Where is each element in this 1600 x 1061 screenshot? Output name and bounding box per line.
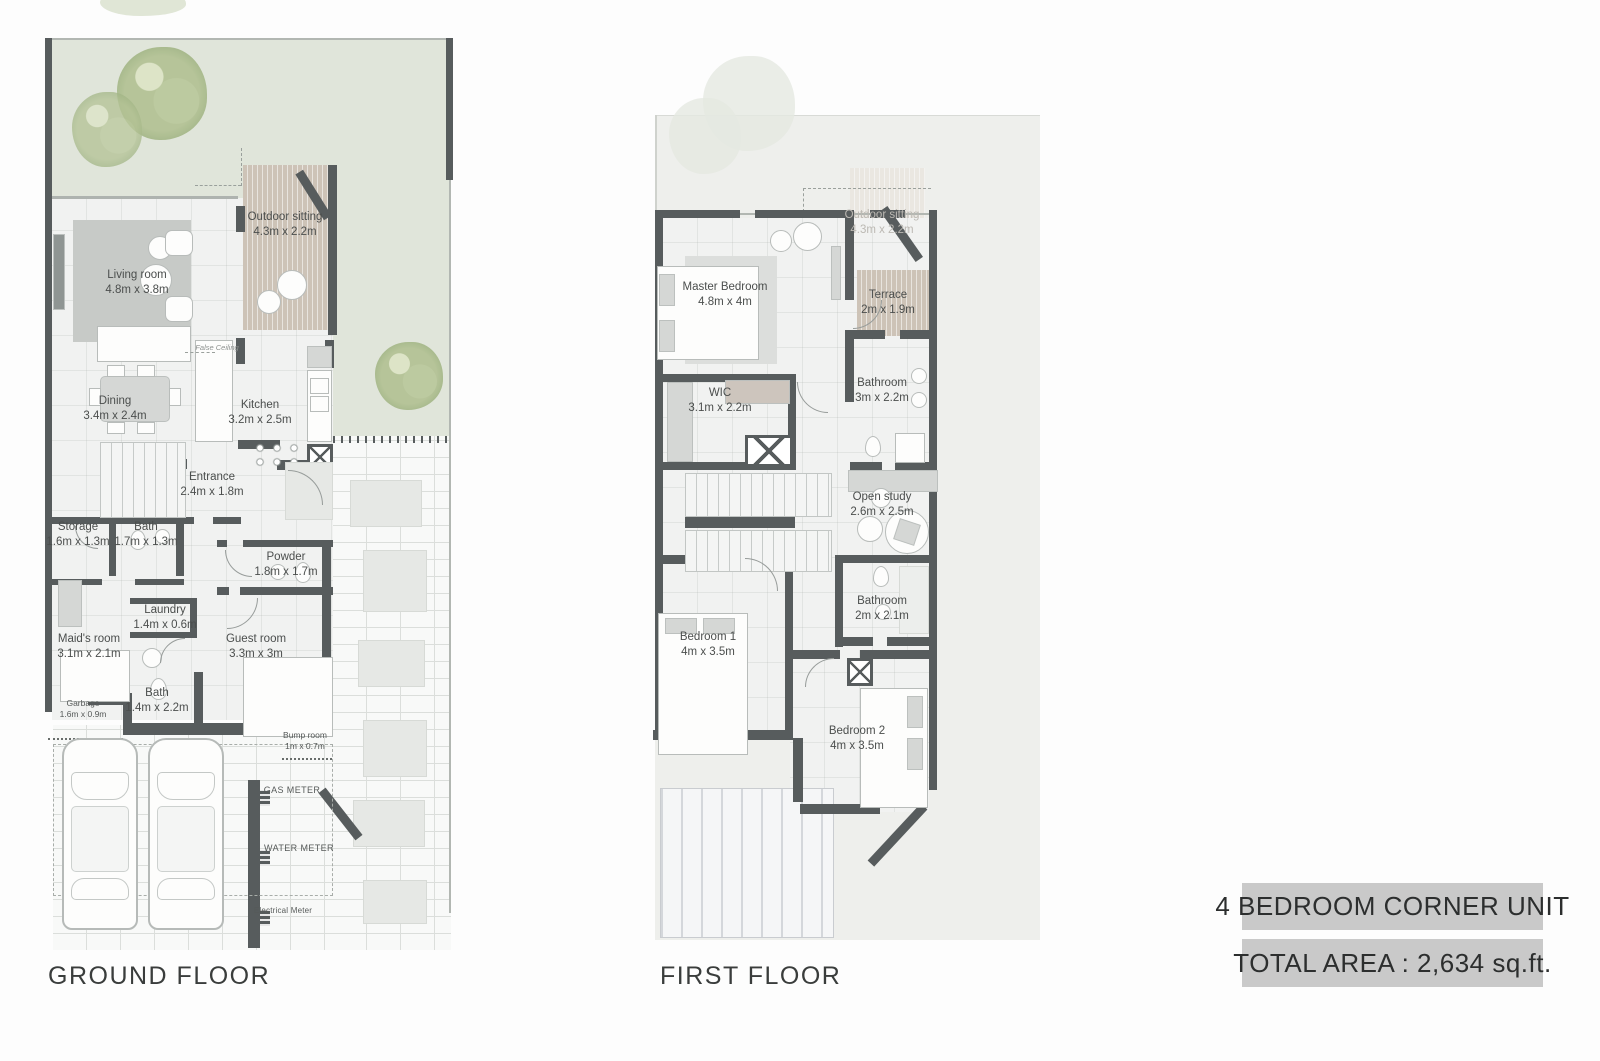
kitchen-sink: [310, 396, 329, 412]
room-label-bath-2: Bath 1.4m x 2.2m: [125, 686, 188, 715]
stair-run-upper: [685, 473, 832, 517]
pillow: [907, 738, 923, 770]
shower: [895, 433, 925, 463]
sink: [911, 368, 927, 384]
car-rear-window: [71, 878, 129, 900]
wall-house-bottom: [127, 723, 202, 735]
room-label-dining: Dining 3.4m x 2.4m: [83, 394, 146, 423]
stair-landing-wall: [685, 517, 795, 528]
floorplan-page: { "title_block": { "unit_type": "4 BEDRO…: [0, 0, 1600, 1061]
wall-bedroom1-right: [785, 555, 793, 738]
false-ceiling-note: False Ceiling: [195, 343, 238, 352]
dining-chair: [169, 388, 181, 406]
false-ceiling-leader: [185, 352, 215, 353]
electrical-meter-label: Electrical Meter: [254, 906, 312, 915]
wall-powder-bottom: [240, 587, 333, 595]
armchair: [165, 296, 193, 322]
water-meter-label: WATER METER: [264, 843, 334, 853]
wall-outer-right: [929, 210, 937, 790]
dashed-line: [195, 185, 241, 186]
unit-type-banner: 4 BEDROOM CORNER UNIT: [1242, 883, 1543, 930]
paving-edge-hatch: [333, 436, 451, 443]
car-roof: [71, 806, 129, 872]
ground-floor-plan: Outdoor sitting 4.3m x 2.2m Living room …: [45, 38, 455, 938]
room-label-kitchen: Kitchen 3.2m x 2.5m: [228, 398, 291, 427]
wall-bathroom2-bottom: [843, 637, 873, 646]
room-label-open-study: Open study 2.6m x 2.5m: [850, 490, 913, 519]
first-floor-title: FIRST FLOOR: [660, 962, 841, 991]
tree: [375, 342, 443, 410]
room-label-laundry: Laundry 1.4m x 0.6m: [133, 603, 196, 632]
first-floor-plan: Outdoor sitting 4.3m x 2.2m Master Bedro…: [645, 38, 1045, 940]
pillow: [907, 696, 923, 728]
room-label-outdoor-sitting: Outdoor sitting 4.3m x 2.2m: [248, 210, 323, 239]
room-label-bathroom-lower: Bathroom 2m x 2.1m: [855, 594, 909, 623]
car-windshield: [157, 772, 215, 800]
tree-canopy-cropped: [100, 0, 186, 16]
wall-outer-left: [45, 38, 52, 712]
room-label-powder: Powder 1.8m x 1.7m: [254, 550, 317, 579]
dashed-roof-line: [803, 188, 931, 189]
wall-powder-top: [243, 540, 333, 547]
wall-powder-jamb: [217, 587, 229, 595]
room-label-bedroom-1: Bedroom 1 4m x 3.5m: [680, 630, 736, 659]
room-label-bath: Bath 1.7m x 1.3m: [114, 520, 177, 549]
lounge-chair: [793, 222, 822, 251]
ghost-tree: [669, 98, 741, 174]
room-label-bathroom-top: Bathroom 3m x 2.2m: [855, 376, 909, 405]
patio-chair: [257, 290, 281, 314]
side-table: [770, 230, 792, 252]
wall-outer-right: [446, 38, 453, 180]
wall-terrace-bottom: [850, 330, 885, 339]
kitchen-sink: [310, 378, 329, 394]
wall-top: [755, 210, 850, 218]
room-label-terrace: Terrace 2m x 1.9m: [861, 288, 915, 317]
outdoor-sitting-deck: [243, 165, 330, 330]
wall-laundry-bottom: [130, 632, 196, 638]
shaft-box: [745, 435, 793, 467]
dining-chair: [137, 422, 155, 434]
gas-meter-label: GAS METER: [264, 785, 321, 795]
car-rear-window: [157, 878, 215, 900]
study-desk: [848, 470, 938, 492]
paving-patch: [350, 480, 422, 527]
wall-terrace-left-lower: [845, 330, 854, 402]
shaft-box: [847, 658, 873, 686]
room-label-master-bedroom: Master Bedroom 4.8m x 4m: [682, 280, 767, 309]
kitchen-counter: [195, 340, 233, 442]
dining-chair: [107, 422, 125, 434]
boundary-fence: [45, 38, 453, 40]
wall-bathroom2-left: [835, 555, 843, 647]
tree: [72, 92, 142, 167]
wall-bathroom2-top: [835, 555, 929, 563]
sofa: [97, 326, 191, 362]
guest-bed: [243, 657, 333, 737]
paving-patch: [358, 640, 425, 687]
wall-top: [655, 210, 740, 218]
wall-deck-jamb: [236, 206, 245, 232]
sink: [911, 392, 927, 408]
room-label-maids-room: Maid's room 3.1m x 2.1m: [57, 632, 120, 661]
car: [148, 738, 224, 930]
pillow: [659, 274, 675, 306]
staircase: [100, 442, 186, 518]
sink: [142, 648, 162, 668]
toilet: [865, 436, 881, 457]
wall-bath-bottom: [135, 579, 184, 585]
fridge: [307, 346, 332, 368]
dining-chair: [107, 365, 125, 377]
wall-bathroom2-bottom: [887, 637, 935, 646]
garden-low-wall: [52, 196, 238, 199]
paving-patch: [363, 550, 427, 612]
room-label-bump-room: Bump room 1m x 0.7m: [283, 730, 327, 752]
room-label-bedroom-2: Bedroom 2 4m x 3.5m: [829, 724, 885, 753]
wall-powder-jamb: [217, 540, 227, 547]
paving-patch: [353, 800, 425, 847]
room-label-wic: WIC 3.1m x 2.2m: [688, 386, 751, 415]
patio-table: [277, 270, 307, 300]
room-label-entrance: Entrance 2.4m x 1.8m: [180, 470, 243, 499]
wall-deck-right: [328, 165, 337, 335]
wall-bedroom2-left: [793, 738, 803, 802]
car-windshield: [71, 772, 129, 800]
wall-hall-jamb: [213, 517, 241, 524]
dashed-roof-line: [803, 188, 804, 212]
car-roof: [157, 806, 215, 872]
paving-patch: [363, 880, 427, 924]
chair: [857, 516, 883, 542]
tv-unit: [53, 234, 65, 310]
wall-terrace-bottom: [900, 330, 937, 339]
pillow: [659, 320, 675, 352]
car: [62, 738, 138, 930]
toilet: [873, 566, 889, 587]
room-label-garbage: Garbage 1.6m x 0.9m: [60, 698, 107, 720]
room-label-living-room: Living room 4.8m x 3.8m: [105, 268, 168, 297]
dashed-line: [241, 148, 242, 186]
storage-shelf: [58, 580, 82, 627]
boundary-line: [655, 115, 657, 210]
dining-chair: [137, 365, 155, 377]
room-label-ghost-outdoor-sitting: Outdoor sitting 4.3m x 2.2m: [845, 208, 920, 237]
paving-patch: [363, 720, 427, 777]
room-label-storage: Storage 1.6m x 1.3m: [46, 520, 109, 549]
total-area-banner: TOTAL AREA : 2,634 sq.ft.: [1242, 939, 1543, 987]
balcony-screen: [831, 246, 841, 300]
armchair: [165, 230, 193, 256]
ground-floor-title: GROUND FLOOR: [48, 962, 270, 991]
room-label-guest-room: Guest room 3.3m x 3m: [226, 632, 286, 661]
